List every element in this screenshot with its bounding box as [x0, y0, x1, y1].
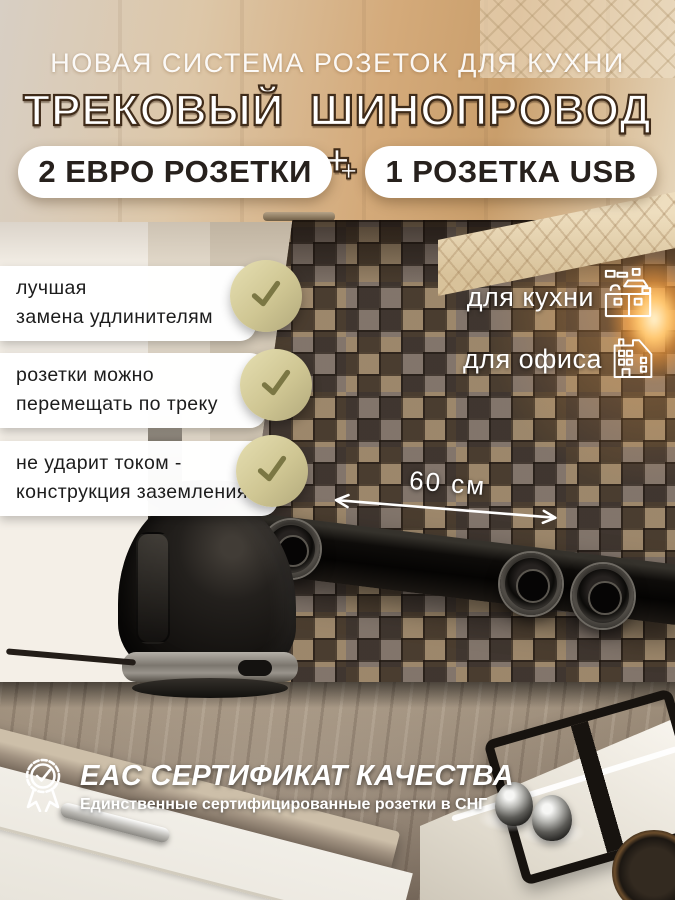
checkmark-circle — [230, 260, 302, 332]
feature-line: розетки можно — [16, 361, 250, 390]
feature-item: не ударит током - конструкция заземления — [0, 441, 278, 516]
badge-euro-sockets: 2 ЕВРО РОЗЕТКИ — [18, 146, 332, 198]
kicker-text: НОВАЯ СИСТЕМА РОЗЕТОК ДЛЯ КУХНИ — [0, 48, 675, 79]
badge-usb-socket: 1 РОЗЕТКА USB — [365, 146, 656, 198]
checkmark-circle — [240, 349, 312, 421]
socket-adapter — [572, 564, 634, 628]
feature-line: замена удлинителям — [16, 303, 240, 332]
certificate-title: EAC СЕРТИФИКАТ КАЧЕСТВА — [80, 760, 514, 793]
product-banner: НОВАЯ СИСТЕМА РОЗЕТОК ДЛЯ КУХНИ ТРЕКОВЫЙ… — [0, 0, 675, 900]
feature-line: не ударит током - — [16, 449, 262, 478]
kettle-water-window — [136, 532, 170, 644]
feature-label: розетки можно перемещать по треку — [0, 353, 266, 428]
measurement-label: 60 см — [408, 465, 487, 501]
kettle-base — [132, 678, 288, 698]
checkmark-icon — [249, 446, 295, 497]
use-case-kitchen: для кухни — [430, 268, 654, 327]
certificate-subtitle: Единственные сертифицированные розетки в… — [80, 796, 514, 814]
cabinet-handle — [263, 212, 335, 221]
feature-item: розетки можно перемещать по треку — [0, 353, 266, 428]
kitchen-icon — [604, 268, 654, 327]
checkmark-icon — [243, 271, 289, 322]
plus-sign: + — [340, 155, 358, 189]
feature-item: лучшая замена удлинителям — [0, 266, 256, 341]
feature-line: лучшая — [16, 274, 240, 303]
checkmark-circle — [236, 435, 308, 507]
certificate-text: EAC СЕРТИФИКАТ КАЧЕСТВА Единственные сер… — [80, 760, 514, 814]
feature-label: лучшая замена удлинителям — [0, 266, 256, 341]
socket-adapter — [500, 553, 562, 615]
office-building-icon — [612, 333, 654, 386]
hob-knob — [532, 795, 572, 841]
use-case-office-label: для офиса — [463, 344, 602, 375]
kettle-switch — [238, 660, 272, 676]
checkmark-icon — [253, 360, 299, 411]
use-cases-block: для кухни для офиса — [430, 268, 654, 386]
badge-row: 2 ЕВРО РОЗЕТКИ + 1 РОЗЕТКА USB — [0, 146, 675, 198]
feature-line: перемещать по треку — [16, 390, 250, 419]
award-seal-check-icon — [18, 756, 68, 817]
use-case-kitchen-label: для кухни — [467, 282, 594, 313]
feature-line: конструкция заземления — [16, 478, 262, 507]
use-case-office: для офиса — [430, 333, 654, 386]
certificate-block: EAC СЕРТИФИКАТ КАЧЕСТВА Единственные сер… — [18, 756, 514, 817]
